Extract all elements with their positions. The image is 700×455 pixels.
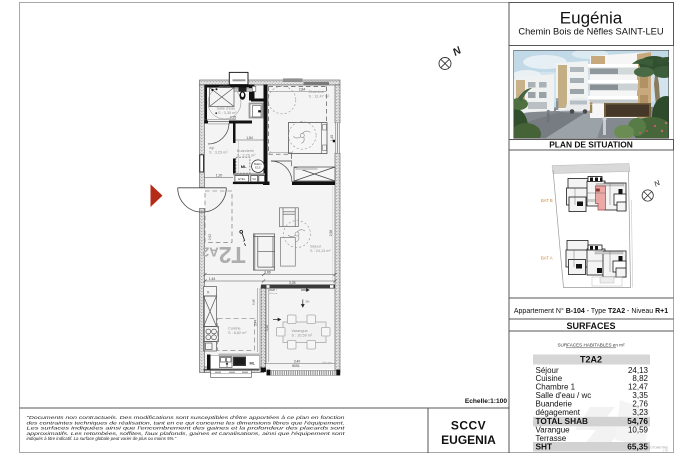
svg-text:S : 3,23 m²: S : 3,23 m² xyxy=(209,151,228,155)
svg-text:Echelle:1:100: Echelle:1:100 xyxy=(465,398,507,405)
svg-text:DGP ↑: DGP ↑ xyxy=(269,288,278,292)
svg-text:Varangue: Varangue xyxy=(292,329,308,333)
svg-text:indiqués à titre indicatif. La: indiqués à titre indicatif. La surface g… xyxy=(27,436,177,441)
svg-text:SHT: SHT xyxy=(536,441,553,451)
svg-text:5,44: 5,44 xyxy=(253,320,257,327)
svg-text:S : 24,13 m²: S : 24,13 m² xyxy=(310,249,331,253)
svg-text:EUGENIA: EUGENIA xyxy=(441,433,496,447)
svg-text:Salle d'eau: Salle d'eau xyxy=(217,106,236,110)
svg-text:S : 12,47 m²: S : 12,47 m² xyxy=(309,94,330,98)
svg-text:PLAN DE SITUATION: PLAN DE SITUATION xyxy=(549,140,633,150)
svg-text:Appartement N° B-104 - Type T2: Appartement N° B-104 - Type T2A2 - Nivea… xyxy=(514,307,668,315)
svg-text:J.TR: J.TR xyxy=(663,449,669,453)
svg-text:Séjour: Séjour xyxy=(310,245,322,249)
svg-text:Réfection: Réfection xyxy=(269,292,279,295)
svg-text:Les surfaces indiquées ainsi q: Les surfaces indiquées ainsi que l'encom… xyxy=(27,426,346,431)
svg-text:1,84: 1,84 xyxy=(246,136,253,140)
svg-text:VA: VA xyxy=(252,177,256,181)
svg-text:SURFACES: SURFACES xyxy=(566,321,615,331)
svg-text:Eugénia: Eugénia xyxy=(560,9,623,28)
svg-text:2,56: 2,56 xyxy=(329,230,333,237)
svg-text:ECS: ECS xyxy=(255,166,261,170)
svg-text:SURFACES HABITABLES en m²: SURFACES HABITABLES en m² xyxy=(557,343,625,348)
svg-text:ETEL: ETEL xyxy=(238,177,245,181)
svg-text:ML: ML xyxy=(250,362,256,366)
svg-text:2,35: 2,35 xyxy=(230,116,237,120)
svg-text:3,40: 3,40 xyxy=(294,359,301,363)
svg-text:Gde corps: Gde corps xyxy=(322,361,333,364)
svg-text:0,90: 0,90 xyxy=(252,299,256,305)
svg-text:1,20: 1,20 xyxy=(216,173,223,177)
svg-text:3,18: 3,18 xyxy=(265,325,269,332)
svg-text:"Documents non contractuels. D: "Documents non contractuels. Des modific… xyxy=(27,415,346,420)
svg-text:10,59: 10,59 xyxy=(628,426,649,435)
svg-text:Buanderie: Buanderie xyxy=(237,149,254,153)
svg-text:S : 3,35 m²: S : 3,35 m² xyxy=(218,111,237,115)
svg-text:SCCV: SCCV xyxy=(451,419,486,433)
svg-text:ML: ML xyxy=(241,164,247,169)
svg-text:BAT A: BAT A xyxy=(541,256,553,261)
svg-text:BAT B: BAT B xyxy=(541,198,553,203)
svg-text:3,86: 3,86 xyxy=(264,270,271,274)
svg-text:Chambre: Chambre xyxy=(309,90,325,94)
svg-text:3,05: 3,05 xyxy=(289,281,296,285)
svg-text:2,62: 2,62 xyxy=(208,234,212,241)
svg-text:Cuisine: Cuisine xyxy=(228,327,241,331)
svg-text:1,44: 1,44 xyxy=(209,277,216,281)
svg-text:Chemin Bois de Nêfles SAINT-LE: Chemin Bois de Nêfles SAINT-LEU xyxy=(518,27,663,37)
svg-text:approximatifs. Les retombées,: approximatifs. Les retombées, soffites, … xyxy=(27,431,346,436)
svg-text:8051: 8051 xyxy=(292,364,300,368)
svg-text:S : 8,82 m²: S : 8,82 m² xyxy=(228,331,247,335)
svg-text:des contraintes techniques de: des contraintes techniques de réalisatio… xyxy=(27,420,345,425)
svg-text:T2A2: T2A2 xyxy=(580,355,602,365)
svg-text:S : 10,59 m²: S : 10,59 m² xyxy=(292,334,313,338)
svg-text:2,84: 2,84 xyxy=(299,87,306,91)
